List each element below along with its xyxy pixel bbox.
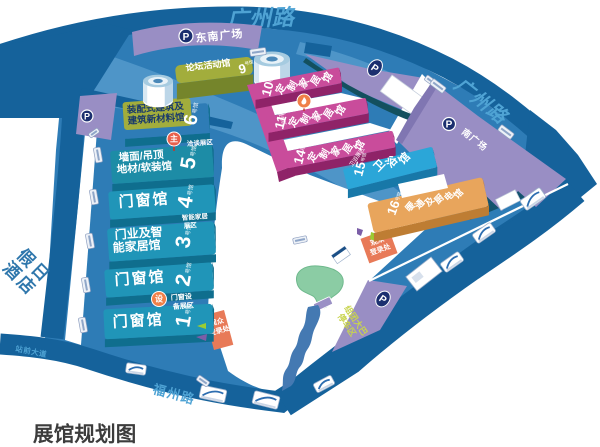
svg-text:P: P — [446, 120, 453, 131]
svg-text:门窗馆: 门窗馆 — [118, 189, 170, 211]
svg-text:主: 主 — [170, 134, 178, 144]
svg-text:门窗馆: 门窗馆 — [112, 310, 164, 331]
svg-text:P: P — [183, 32, 190, 43]
svg-text:门窗馆: 门窗馆 — [114, 267, 166, 289]
svg-text:展馆规划图: 展馆规划图 — [33, 422, 137, 446]
svg-text:设: 设 — [155, 294, 163, 304]
svg-text:P: P — [84, 111, 90, 121]
